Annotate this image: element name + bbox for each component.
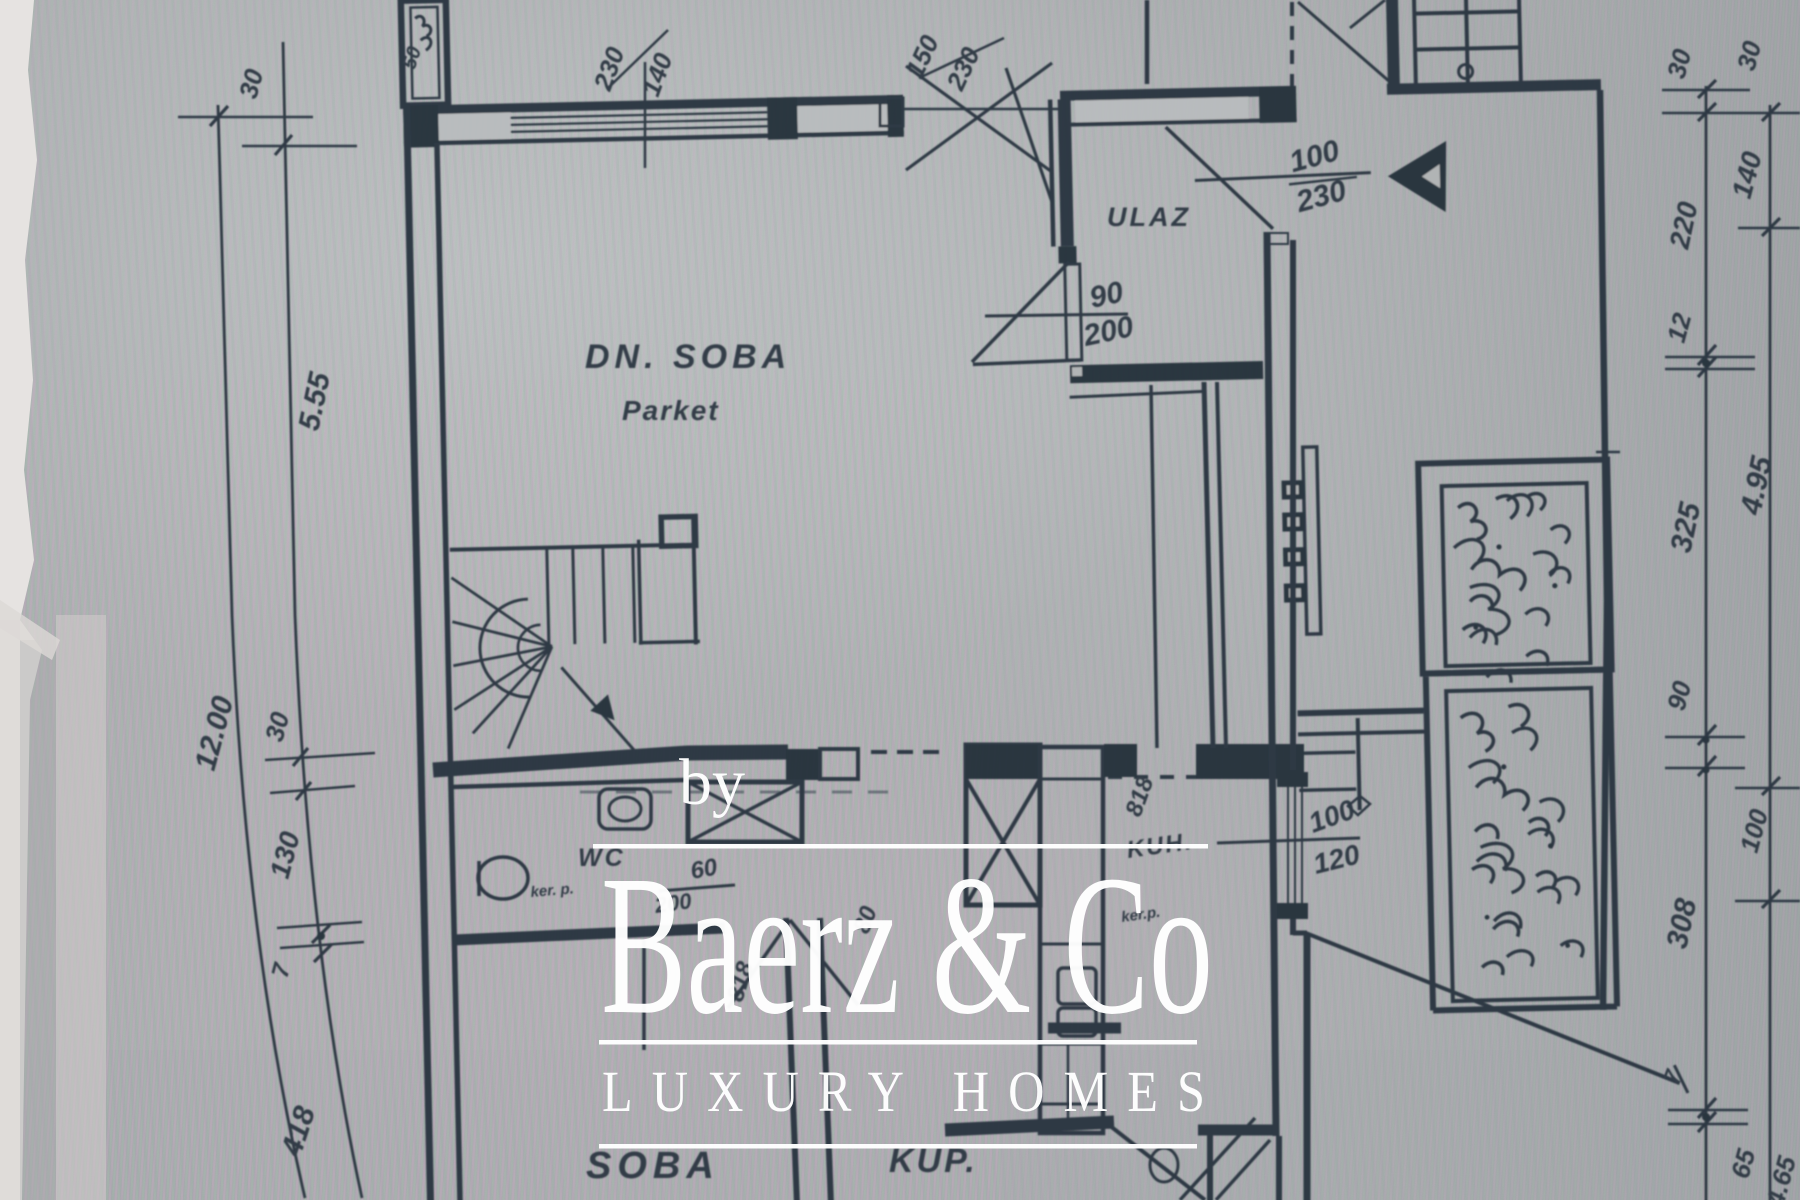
svg-text:90: 90: [1087, 276, 1127, 315]
svg-text:by: by: [679, 746, 745, 819]
svg-text:Baerz & Co: Baerz & Co: [601, 835, 1213, 1056]
svg-text:Parket: Parket: [622, 395, 720, 426]
svg-text:SOBA: SOBA: [586, 1145, 720, 1187]
svg-text:DN. SOBA: DN. SOBA: [585, 338, 791, 376]
svg-text:ULAZ: ULAZ: [1107, 202, 1191, 232]
svg-text:LUXURY HOMES: LUXURY HOMES: [602, 1059, 1224, 1124]
